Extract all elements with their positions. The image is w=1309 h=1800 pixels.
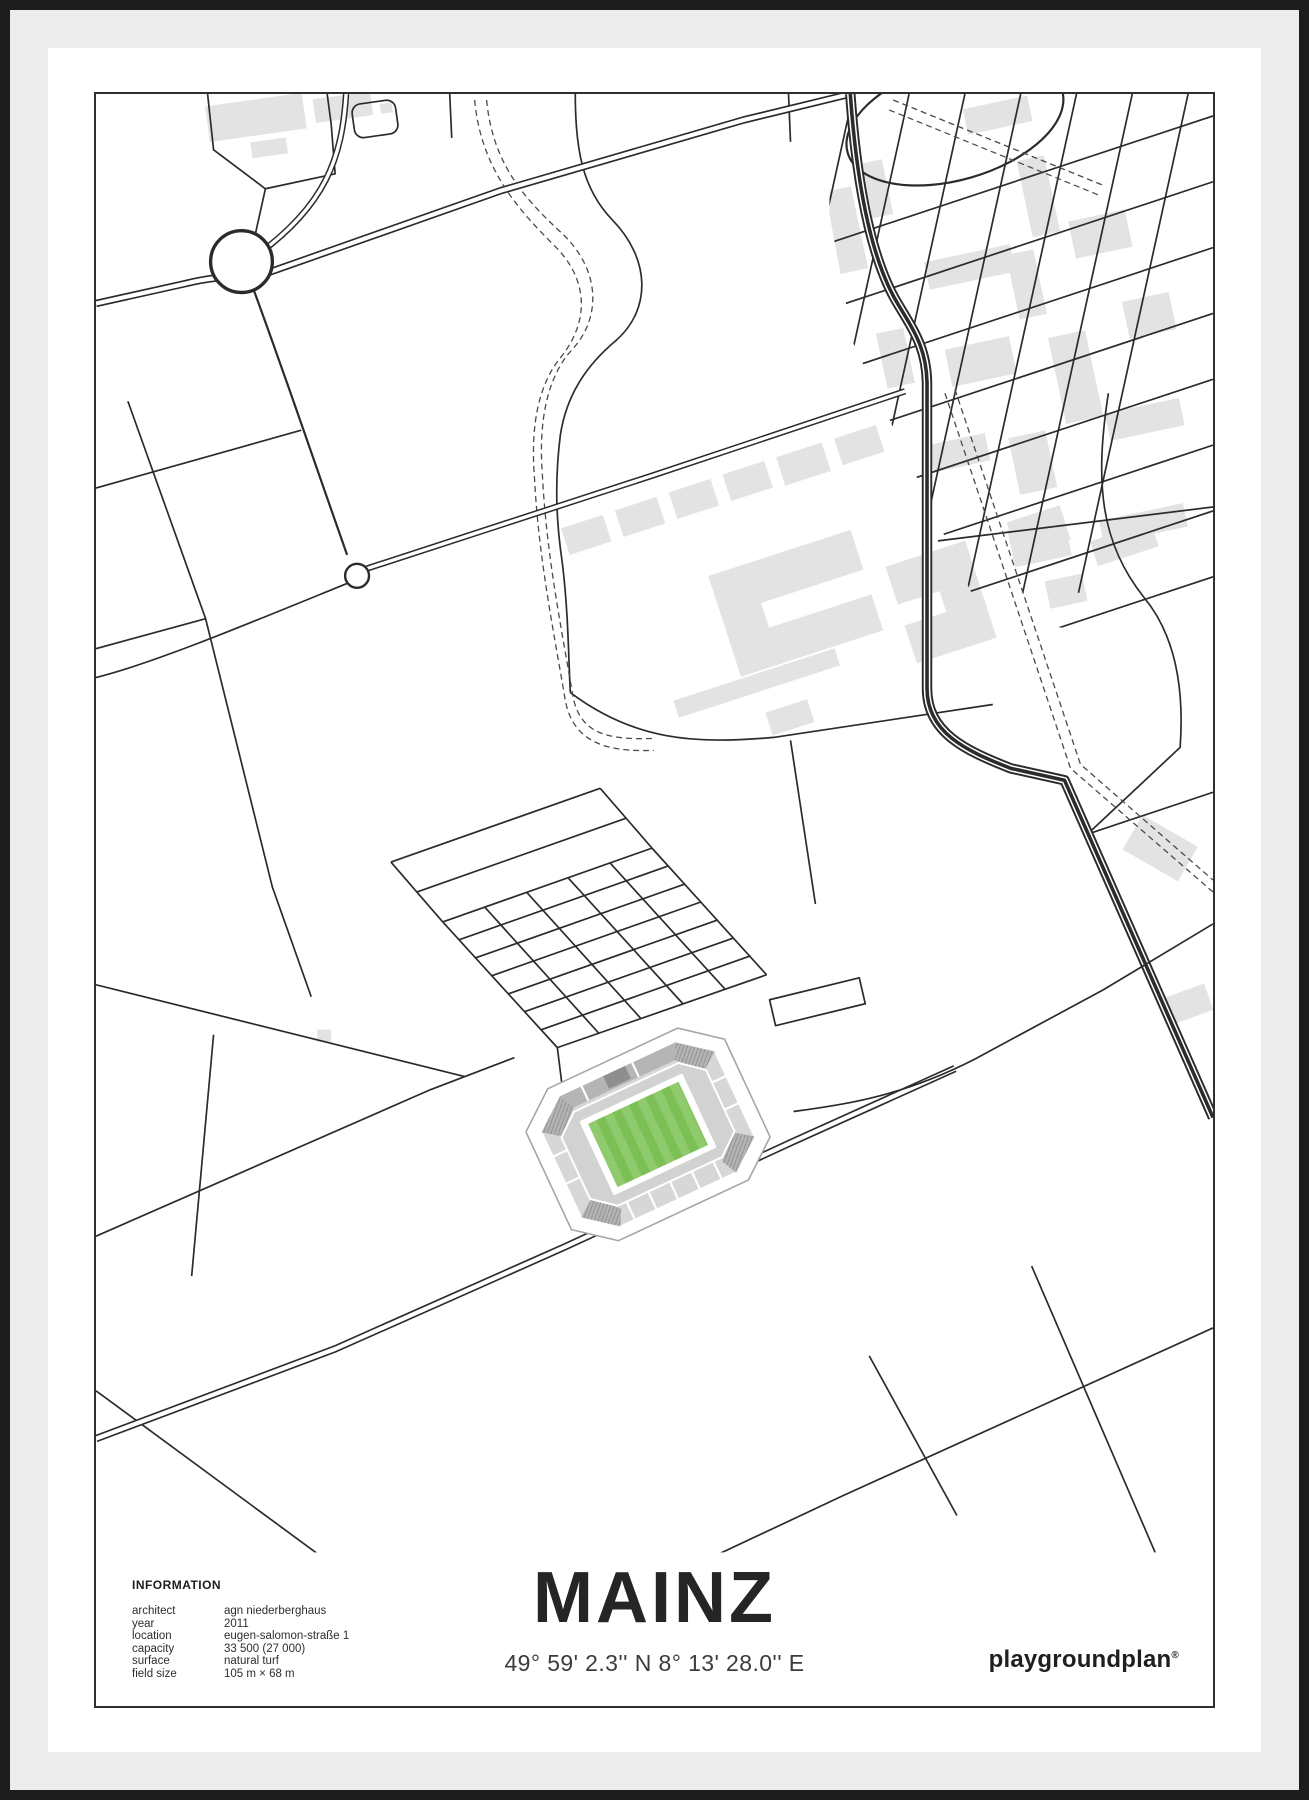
city-title: MAINZ: [96, 1562, 1213, 1634]
stadium: [513, 1012, 782, 1257]
roundabout: [211, 231, 273, 293]
buildings-campus-blocks: [640, 497, 1004, 761]
field-boundaries: [96, 94, 1213, 1706]
brand-name: playgroundplan: [989, 1646, 1172, 1673]
poster-frame: INFORMATION architect agn niederberghaus…: [0, 0, 1309, 1800]
roundabout-south-road: [245, 268, 347, 555]
registered-mark: ®: [1171, 1650, 1179, 1661]
mini-roundabout: [345, 564, 369, 588]
stadium-road: [96, 1069, 955, 1439]
crossing-road: [794, 924, 1213, 1112]
buildings-top-left: [205, 94, 397, 164]
city-map: [96, 94, 1213, 1706]
map-board: INFORMATION architect agn niederberghaus…: [94, 92, 1215, 1708]
main-road-east: [850, 94, 1213, 1117]
brand-logo: playgroundplan®: [989, 1646, 1179, 1674]
